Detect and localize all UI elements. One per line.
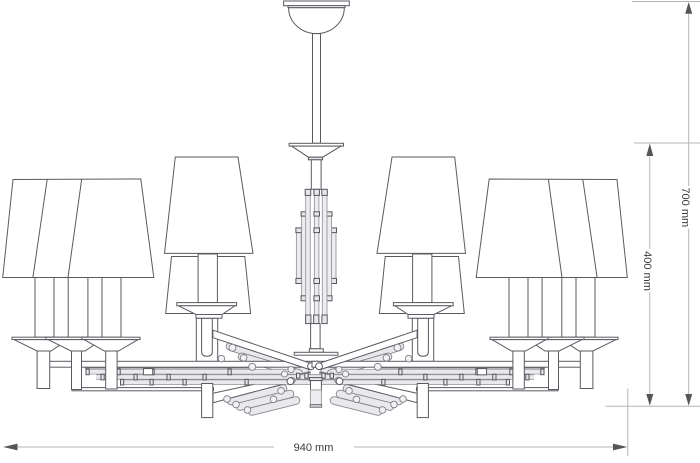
svg-text:400 mm: 400 mm: [641, 251, 653, 291]
svg-text:940 mm: 940 mm: [294, 442, 334, 454]
svg-text:700 mm: 700 mm: [679, 187, 691, 227]
